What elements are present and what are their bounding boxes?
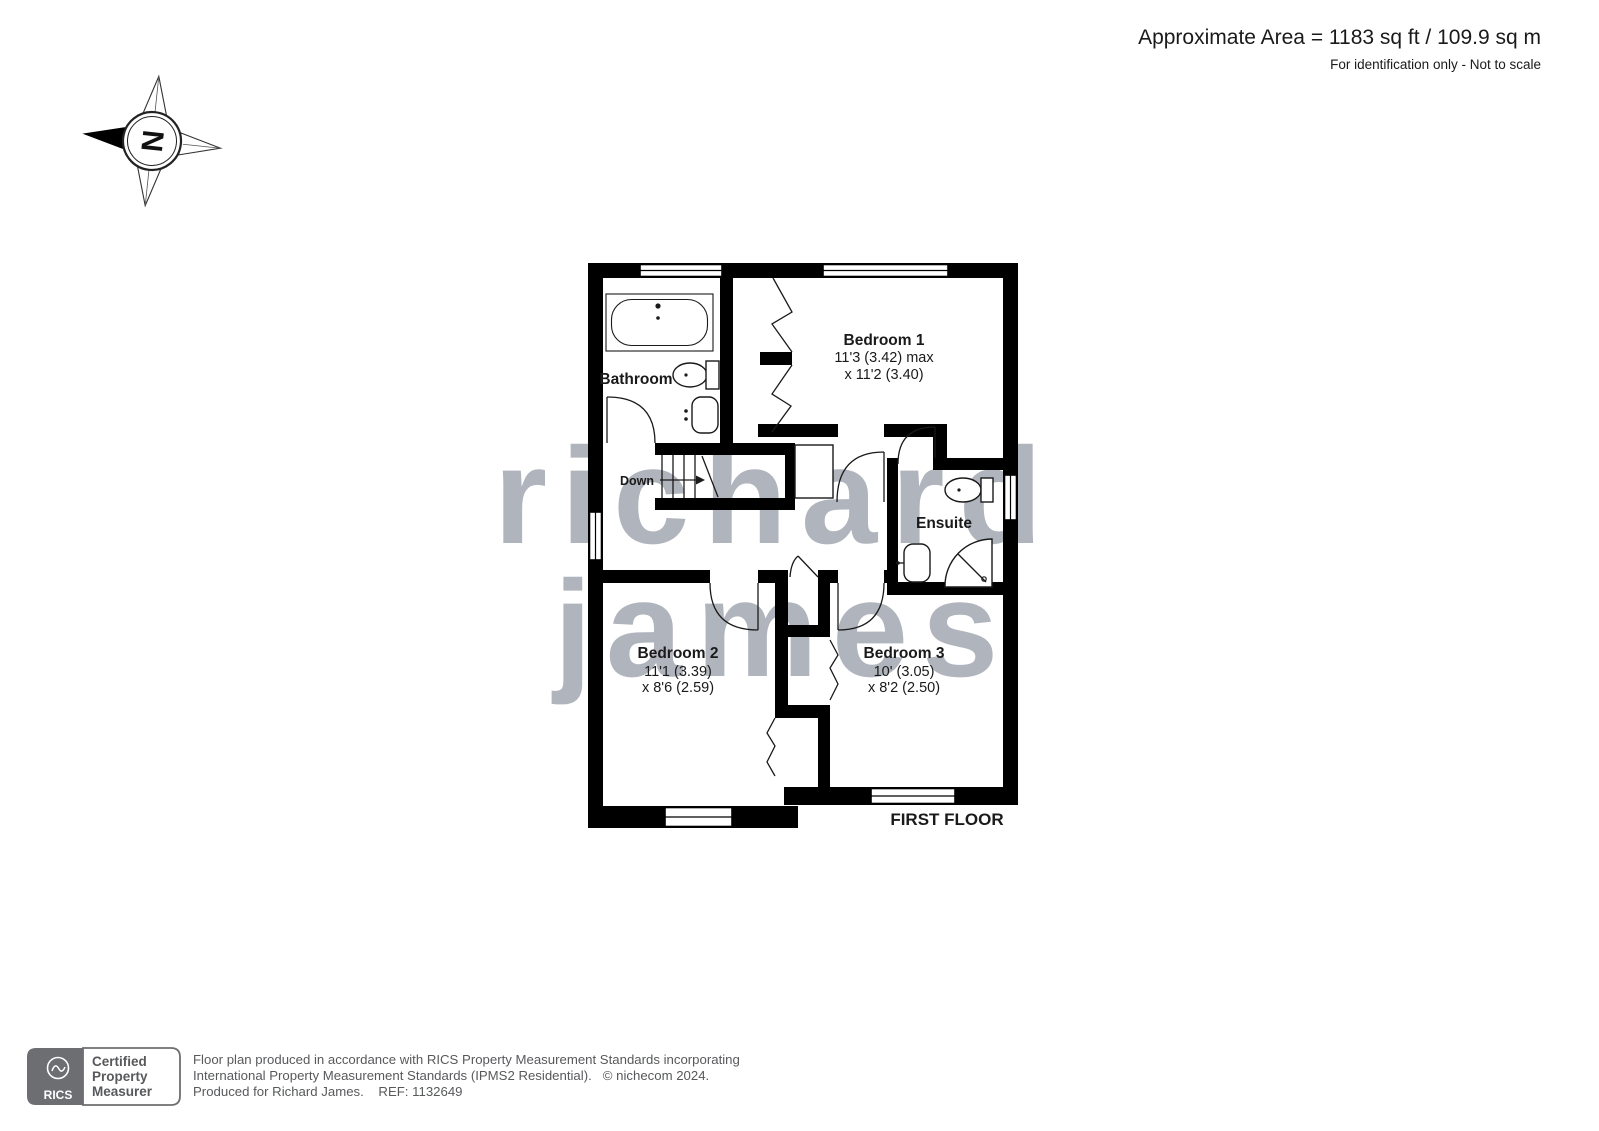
footer-line2: International Property Measurement Stand… xyxy=(193,1068,709,1083)
bathroom-sink xyxy=(692,397,718,433)
ensuite-label: Ensuite xyxy=(916,515,972,532)
disclaimer-text: For identification only - Not to scale xyxy=(1330,57,1541,72)
compass-rose: N xyxy=(76,69,228,213)
bathroom-label: Bathroom xyxy=(599,371,672,388)
wall xyxy=(720,278,733,455)
bedroom3-label: Bedroom 3 xyxy=(864,645,945,662)
wall xyxy=(603,570,710,583)
bathroom-fixtures xyxy=(606,294,719,433)
footer: RICS Certified Property Measurer Floor p… xyxy=(27,1048,740,1105)
bedroom1-dim1: 11'3 (3.42) max xyxy=(834,350,934,366)
badge-line2: Property xyxy=(92,1069,148,1084)
wall xyxy=(775,583,788,718)
wall xyxy=(818,583,830,625)
wall xyxy=(884,570,898,583)
bedroom2-dim2: x 8'6 (2.59) xyxy=(642,680,714,696)
badge-line1: Certified xyxy=(92,1054,147,1069)
bedroom2-cupboard-door xyxy=(767,718,775,776)
toilet xyxy=(673,363,707,387)
wall xyxy=(788,625,830,637)
ensuite-cistern xyxy=(981,478,993,502)
bedroom3-dim1: 10' (3.05) xyxy=(874,664,935,680)
wall xyxy=(758,570,788,583)
ensuite-toilet xyxy=(945,478,981,502)
wall xyxy=(760,352,792,365)
badge-line3: Measurer xyxy=(92,1084,153,1099)
wall xyxy=(933,458,1003,470)
wall xyxy=(788,705,830,718)
ensuite-sink xyxy=(904,544,930,582)
bedroom2-dim1: 11'1 (3.39) xyxy=(644,664,712,680)
bedroom2-label: Bedroom 2 xyxy=(638,645,719,662)
floorplan-canvas: Approximate Area = 1183 sq ft / 109.9 sq… xyxy=(0,0,1599,1131)
wall xyxy=(785,443,795,510)
floor-title: FIRST FLOOR xyxy=(890,810,1003,829)
approximate-area-text: Approximate Area = 1183 sq ft / 109.9 sq… xyxy=(1138,26,1541,49)
wall xyxy=(655,443,785,455)
bedroom1-label: Bedroom 1 xyxy=(844,332,925,349)
footer-line3: Produced for Richard James. REF: 1132649 xyxy=(193,1084,463,1099)
wall xyxy=(1003,263,1018,805)
wall xyxy=(818,718,830,787)
wall xyxy=(818,570,838,583)
wall xyxy=(655,498,785,510)
rics-logo-text: RICS xyxy=(44,1088,73,1102)
stairs-down-label: Down xyxy=(620,474,654,488)
compass-north-pointer xyxy=(81,123,125,149)
toilet-cistern xyxy=(706,361,719,389)
footer-line1: Floor plan produced in accordance with R… xyxy=(193,1052,740,1067)
stair-cupboard xyxy=(795,445,833,498)
bedroom3-dim2: x 8'2 (2.50) xyxy=(868,680,940,696)
compass-north-letter: N xyxy=(136,129,171,154)
bedroom1-wardrobe-door xyxy=(772,278,792,352)
bedroom1-dim2: x 11'2 (3.40) xyxy=(844,367,923,383)
floorplan-page: Approximate Area = 1183 sq ft / 109.9 sq… xyxy=(0,0,1599,1131)
